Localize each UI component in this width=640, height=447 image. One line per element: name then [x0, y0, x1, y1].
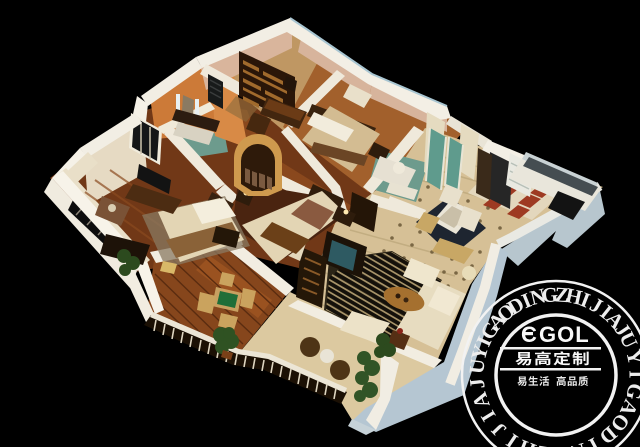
svg-text:GOL: GOL [539, 322, 590, 347]
svg-text:U: U [464, 358, 489, 376]
svg-text:I: I [624, 370, 640, 378]
